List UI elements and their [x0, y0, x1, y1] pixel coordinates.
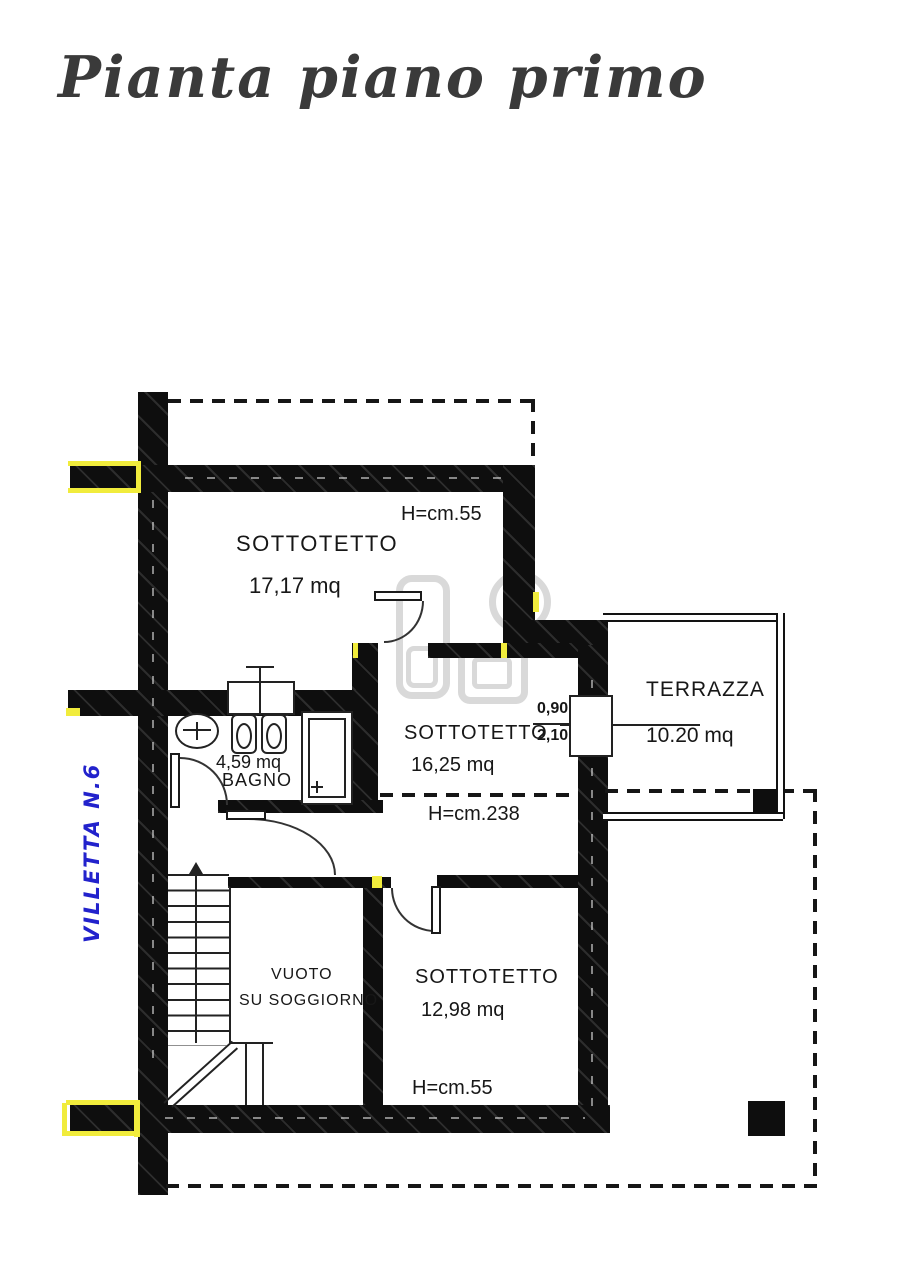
highlight-mark	[66, 1100, 140, 1105]
room-area-terrazza: 10.20 mq	[646, 724, 734, 748]
highlight-mark	[136, 461, 141, 493]
highlight-mark	[62, 1103, 67, 1136]
wall-bottom	[138, 1105, 610, 1133]
wall-vuoto-top	[228, 877, 391, 888]
terrace-door-icon	[569, 695, 613, 757]
wall-hatch-line	[152, 500, 154, 1060]
stair-treads	[168, 874, 229, 1046]
stair-direction-arrow-icon	[189, 862, 203, 874]
floor-plan-page: Pianta piano primo	[0, 0, 924, 1280]
stair-center-line	[195, 868, 197, 1043]
room-label-vuoto-line1: VUOTO	[271, 966, 333, 984]
wall-hatch-line	[165, 1117, 585, 1119]
wall-upper-right	[503, 465, 535, 623]
highlight-mark	[501, 643, 507, 658]
room-label-terrazza: TERRAZZA	[646, 678, 765, 702]
watermark-shape	[472, 657, 512, 689]
highlight-mark	[372, 876, 382, 888]
shower-drain-mark	[316, 781, 318, 793]
highlight-mark	[68, 461, 140, 466]
pillar	[748, 1101, 785, 1136]
unit-label-villetta: VILLETTA N.6	[80, 738, 104, 943]
height-note-bottom: H=cm.55	[412, 1077, 493, 1100]
page-title: Pianta piano primo	[58, 44, 708, 111]
door-leaf	[226, 810, 266, 820]
highlight-mark	[68, 488, 140, 493]
stair-break-line	[163, 1041, 233, 1104]
height-note-mid: H=cm.238	[428, 803, 520, 826]
terrace-wall-top	[603, 613, 783, 622]
window-cap-line	[246, 666, 274, 668]
highlight-mark	[134, 1100, 140, 1137]
room-area-sottotetto-mid: 16,25 mq	[411, 754, 494, 777]
dashed-height-line	[380, 793, 576, 797]
wall-sottotetto-bottom-top	[437, 875, 578, 888]
door-leaf	[374, 591, 422, 601]
door-swing-arc	[391, 888, 435, 932]
stair-winder-line	[229, 1042, 273, 1044]
stair-break-line	[171, 1047, 238, 1107]
door-leaf	[170, 753, 180, 808]
stair-winder-line	[245, 1044, 247, 1105]
toilet-bowl	[236, 723, 252, 749]
room-label-vuoto-line2: SU SOGGIORNO	[239, 992, 378, 1010]
room-label-bagno: BAGNO	[222, 770, 292, 791]
bidet-bowl	[266, 723, 282, 749]
dashed-overhang-right	[813, 789, 817, 1188]
terrace-wall-bottom	[603, 812, 783, 821]
room-label-sottotetto-mid: SOTTOTETTO	[404, 722, 548, 745]
dashed-roof-outline-right	[531, 399, 535, 465]
wall-hatch-line	[185, 477, 515, 479]
highlight-mark	[353, 643, 358, 658]
room-label-sottotetto-top: SOTTOTETTO	[236, 531, 398, 557]
door-leaf	[431, 886, 441, 934]
window-center-line	[259, 668, 261, 714]
highlight-mark	[533, 592, 539, 612]
room-area-sottotetto-top: 17,17 mq	[249, 573, 341, 599]
dashed-roof-outline-top	[168, 399, 535, 403]
door-dimension-height: 2,10	[537, 727, 568, 745]
dashed-overhang-top	[605, 789, 817, 793]
door-dimension-width: 0,90	[537, 700, 568, 718]
door-swing-arc	[248, 818, 336, 875]
wall-bath-right	[352, 643, 378, 813]
pillar	[753, 789, 777, 813]
height-note-top: H=cm.55	[401, 503, 482, 526]
window-icon	[227, 681, 295, 715]
highlight-mark	[66, 708, 80, 716]
wall-stub-bottom-left	[70, 1105, 138, 1133]
room-area-sottotetto-bottom: 12,98 mq	[421, 999, 504, 1022]
stair-winder-line	[262, 1044, 264, 1105]
sink-cross-line	[196, 722, 198, 740]
dashed-overhang-bottom	[166, 1184, 817, 1188]
terrace-wall-right	[776, 613, 785, 819]
stair-edge-line	[229, 888, 231, 1043]
highlight-mark	[66, 1131, 140, 1136]
room-label-sottotetto-bottom: SOTTOTETTO	[415, 966, 559, 989]
